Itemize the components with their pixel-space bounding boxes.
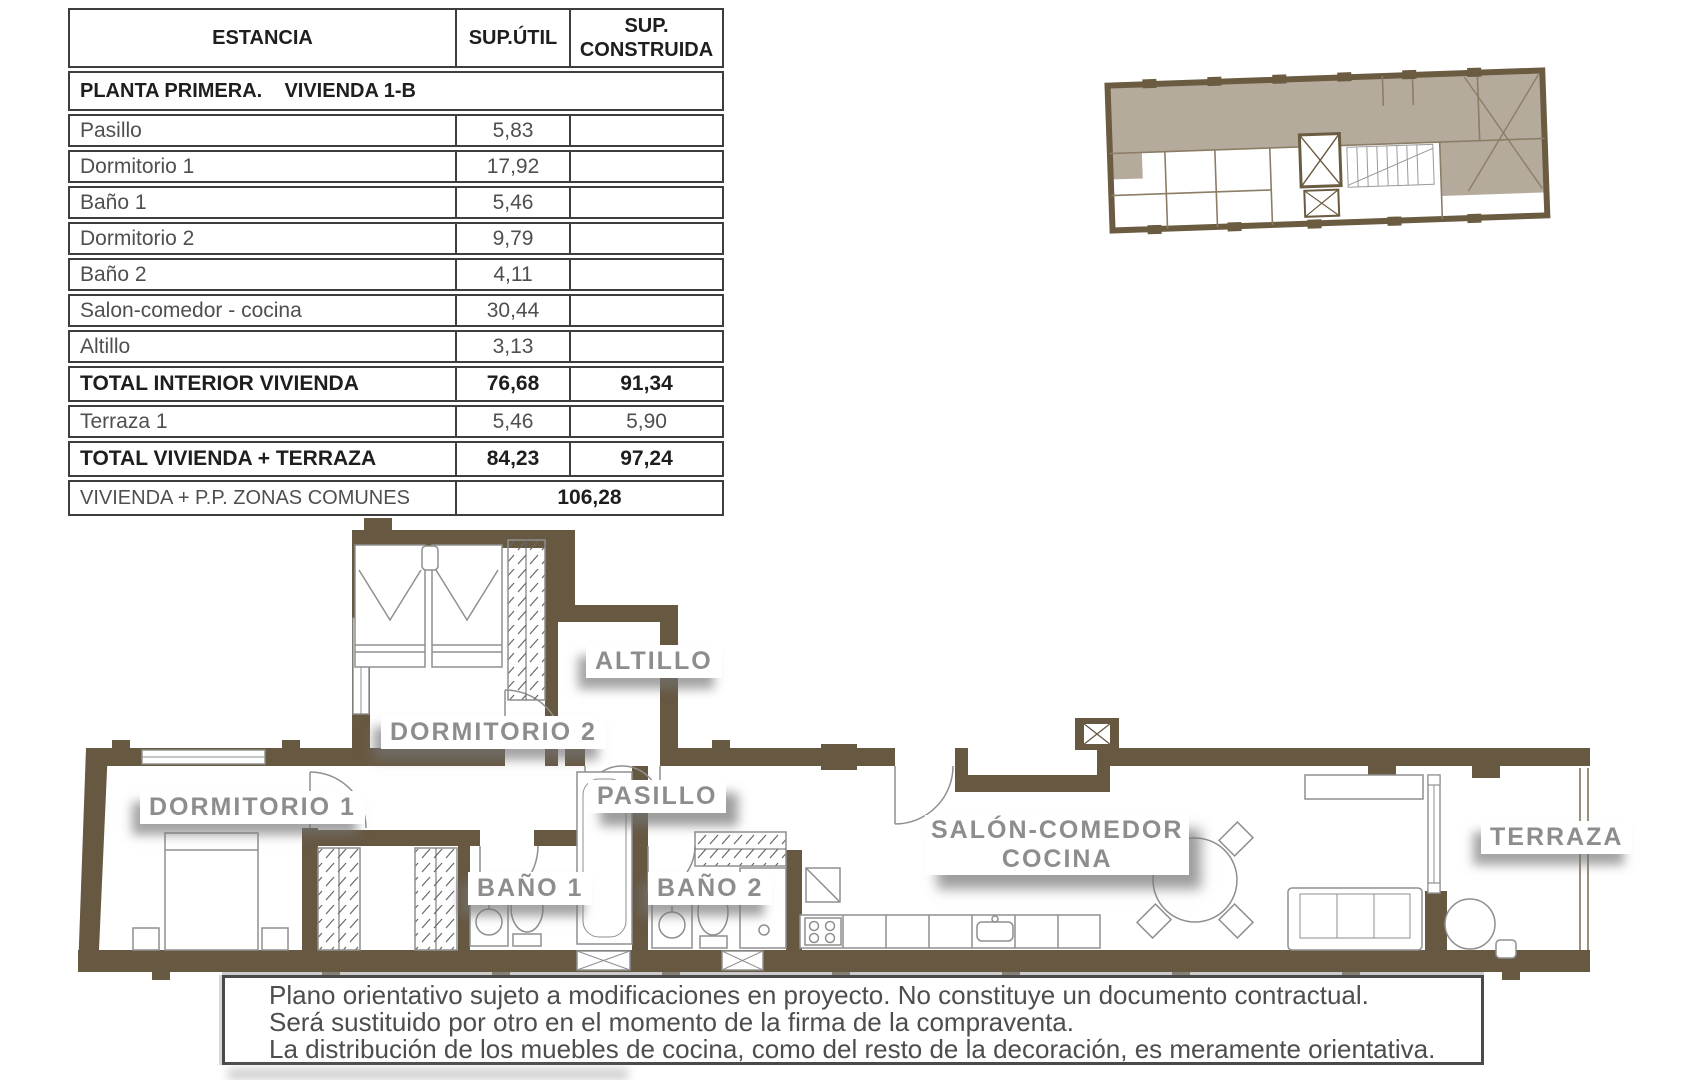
cell-util: 84,23	[455, 443, 569, 475]
disclaimer-line: La distribución de los muebles de cocina…	[269, 1036, 1481, 1063]
room-label-terraza: TERRAZA	[1481, 821, 1632, 854]
cell-util: 5,46	[455, 407, 569, 436]
cell-estancia: Pasillo	[70, 116, 455, 145]
cell-util: 9,79	[455, 224, 569, 253]
bed-single	[355, 545, 425, 667]
disclaimer-line: Plano orientativo sujeto a modificacione…	[269, 982, 1481, 1009]
salon-label-line2: COCINA	[1002, 845, 1113, 874]
table-row: Salon-comedor - cocina 30,44	[68, 294, 724, 327]
closet	[695, 832, 786, 866]
elevator-x	[1299, 134, 1342, 217]
cell-estancia: Dormitorio 1	[70, 152, 455, 181]
table-row: Baño 2 4,11	[68, 258, 724, 291]
room-label-dormitorio1: DORMITORIO 1	[140, 791, 365, 824]
salon-label-line1: SALÓN-COMEDOR	[931, 816, 1183, 845]
cell-estancia: TOTAL INTERIOR VIVIENDA	[70, 368, 455, 400]
bed-double	[165, 833, 258, 950]
cell-construida	[569, 260, 722, 289]
cell-estancia: Salon-comedor - cocina	[70, 296, 455, 325]
shadow-smudge	[228, 1069, 628, 1079]
header-estancia: ESTANCIA	[70, 10, 455, 66]
table-row: Altillo 3,13	[68, 330, 724, 363]
terrace-table	[1445, 899, 1516, 958]
table-row: Dormitorio 1 17,92	[68, 150, 724, 183]
room-label-bano2: BAÑO 2	[648, 872, 772, 905]
sofa	[1288, 888, 1422, 950]
room-label-salon-comedor-cocina: SALÓN-COMEDOR COCINA	[925, 815, 1189, 875]
sink	[652, 902, 692, 948]
wardrobe	[415, 848, 457, 950]
cell-util: 3,13	[455, 332, 569, 361]
water-heater	[806, 868, 840, 902]
cell-construida	[569, 224, 722, 253]
shaft-x	[1083, 723, 1111, 745]
threshold-x	[722, 951, 763, 970]
key-plan	[1085, 48, 1570, 258]
section-title: PLANTA PRIMERA. VIVIENDA 1-B	[70, 73, 722, 109]
wardrobe	[318, 848, 360, 950]
cell-util: 4,11	[455, 260, 569, 289]
keyplan-shaded-left	[1110, 150, 1143, 179]
table-section-row: PLANTA PRIMERA. VIVIENDA 1-B	[68, 71, 724, 111]
table-row: Dormitorio 2 9,79	[68, 222, 724, 255]
table-row-total: TOTAL VIVIENDA + TERRAZA 84,23 97,24	[68, 441, 724, 477]
table-row: Baño 1 5,46	[68, 186, 724, 219]
cell-estancia: Altillo	[70, 332, 455, 361]
disclaimer-box: Plano orientativo sujeto a modificacione…	[222, 975, 1484, 1065]
table-row: Pasillo 5,83	[68, 114, 724, 147]
cell-estancia: Terraza 1	[70, 407, 455, 436]
cell-estancia: Baño 1	[70, 188, 455, 217]
table-row-total: TOTAL INTERIOR VIVIENDA 76,68 91,34	[68, 366, 724, 402]
cell-construida	[569, 296, 722, 325]
cell-util: 5,83	[455, 116, 569, 145]
cell-util: 17,92	[455, 152, 569, 181]
bed-single	[432, 545, 502, 667]
nightstand	[133, 928, 159, 950]
cell-construida	[569, 152, 722, 181]
threshold-x	[577, 951, 630, 970]
cell-construida: 97,24	[569, 443, 722, 475]
room-label-altillo: ALTILLO	[586, 645, 722, 678]
cooktop	[805, 918, 841, 945]
cell-construida	[569, 116, 722, 145]
cell-construida	[569, 332, 722, 361]
areas-table: ESTANCIA SUP.ÚTIL SUP. CONSTRUIDA PLANTA…	[68, 8, 724, 516]
cell-construida	[569, 188, 722, 217]
cell-construida: 5,90	[569, 407, 722, 436]
cell-util: 5,46	[455, 188, 569, 217]
nightstand	[422, 546, 438, 570]
cell-util: 30,44	[455, 296, 569, 325]
room-label-pasillo: PASILLO	[588, 780, 726, 813]
cell-util: 76,68	[455, 368, 569, 400]
wardrobe	[508, 540, 545, 700]
nightstand	[262, 928, 288, 950]
disclaimer-line: Será sustituido por otro en el momento d…	[269, 1009, 1481, 1036]
cell-estancia: Baño 2	[70, 260, 455, 289]
keyplan-shaded-unit-right	[1440, 136, 1547, 196]
cell-construida: 91,34	[569, 368, 722, 400]
table-header-row: ESTANCIA SUP.ÚTIL SUP. CONSTRUIDA	[68, 8, 724, 68]
room-label-dormitorio2: DORMITORIO 2	[381, 716, 606, 749]
room-label-bano1: BAÑO 1	[468, 872, 592, 905]
stairs	[1347, 144, 1434, 187]
cell-estancia: TOTAL VIVIENDA + TERRAZA	[70, 443, 455, 475]
cell-estancia: Dormitorio 2	[70, 224, 455, 253]
header-sup-util: SUP.ÚTIL	[455, 10, 569, 66]
table-row: Terraza 1 5,46 5,90	[68, 405, 724, 438]
sink	[470, 898, 508, 946]
header-sup-construida: SUP. CONSTRUIDA	[569, 10, 722, 66]
floor-plan	[72, 510, 1602, 980]
kitchen-counter	[800, 915, 1100, 948]
sideboard	[1305, 775, 1423, 799]
